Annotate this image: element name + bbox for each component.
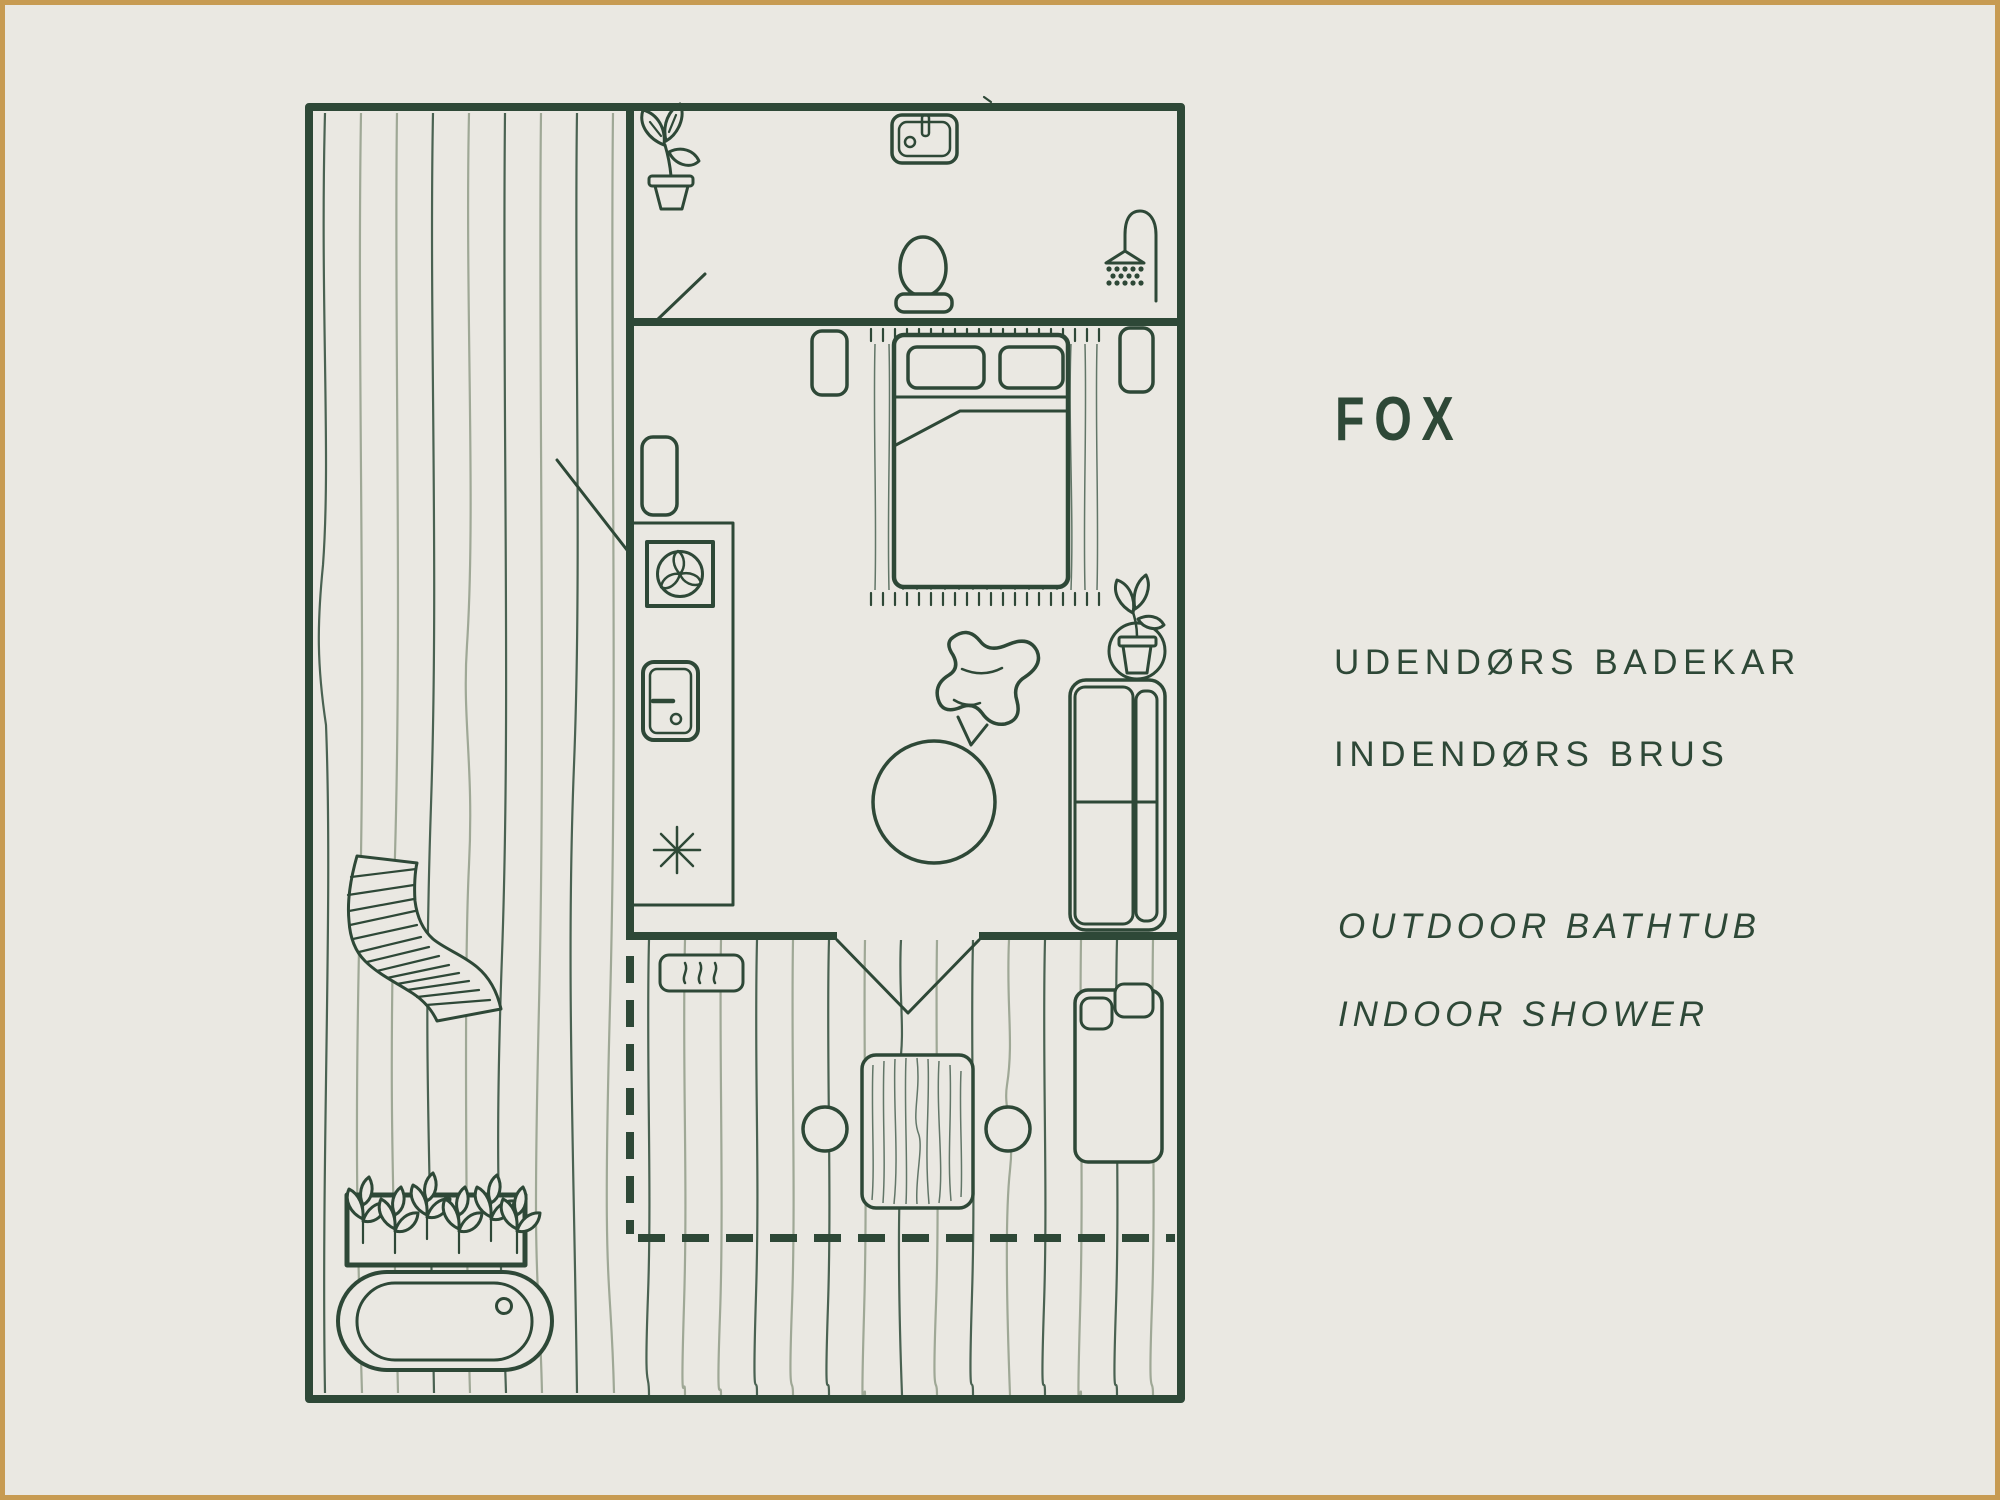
potted-plant-icon [642, 104, 699, 209]
plant-stand-icon [1109, 575, 1165, 679]
soap [1115, 984, 1153, 1017]
rear-deck [660, 940, 1162, 1208]
pillow [1000, 347, 1063, 388]
pillow [908, 347, 984, 388]
wood-table [862, 1055, 973, 1208]
stool [803, 1107, 847, 1151]
door-swing [557, 460, 627, 550]
bath-mat [1075, 984, 1162, 1162]
wardrobe [642, 437, 677, 515]
nightstand [812, 331, 847, 395]
toilet-icon [896, 237, 952, 312]
cabin-title: FOX [1335, 389, 1463, 451]
feature-en-indoor-shower: INDOOR SHOWER [1338, 997, 1709, 1032]
soap [1081, 998, 1112, 1029]
bedroom [634, 328, 1165, 930]
planter-box [347, 1173, 540, 1265]
bathroom [642, 97, 1156, 321]
rug-fringe [871, 593, 1099, 605]
feature-da-indoor-shower: INDENDØRS BRUS [1334, 737, 1729, 772]
kitchenette [634, 437, 733, 905]
mini-fridge-icon [643, 662, 698, 740]
ventilation-fan-icon [647, 542, 713, 606]
bathtub [338, 1272, 552, 1370]
butterfly-chair [937, 632, 1038, 745]
door-swing [656, 274, 705, 321]
sofa [1070, 680, 1165, 930]
feature-en-outdoor-bathtub: OUTDOOR BATHTUB [1338, 909, 1761, 944]
door-swing-double [837, 940, 979, 1013]
feature-da-outdoor-bathtub: UDENDØRS BADEKAR [1334, 645, 1801, 680]
lounge-chair [348, 856, 501, 1021]
side-deck [338, 460, 627, 1370]
shower-icon [1106, 211, 1156, 301]
bed-with-pillows [894, 335, 1068, 587]
ottoman [873, 741, 995, 863]
stool [986, 1107, 1030, 1151]
nightstand [1120, 328, 1153, 392]
asterisk-symbol [654, 827, 700, 873]
heater-icon [660, 955, 743, 991]
wall-tick [984, 97, 991, 102]
sink-icon [892, 115, 957, 163]
shower-drops [1106, 266, 1143, 285]
poster-page: FOX UDENDØRS BADEKAR INDENDØRS BRUS OUTD… [0, 0, 2000, 1500]
